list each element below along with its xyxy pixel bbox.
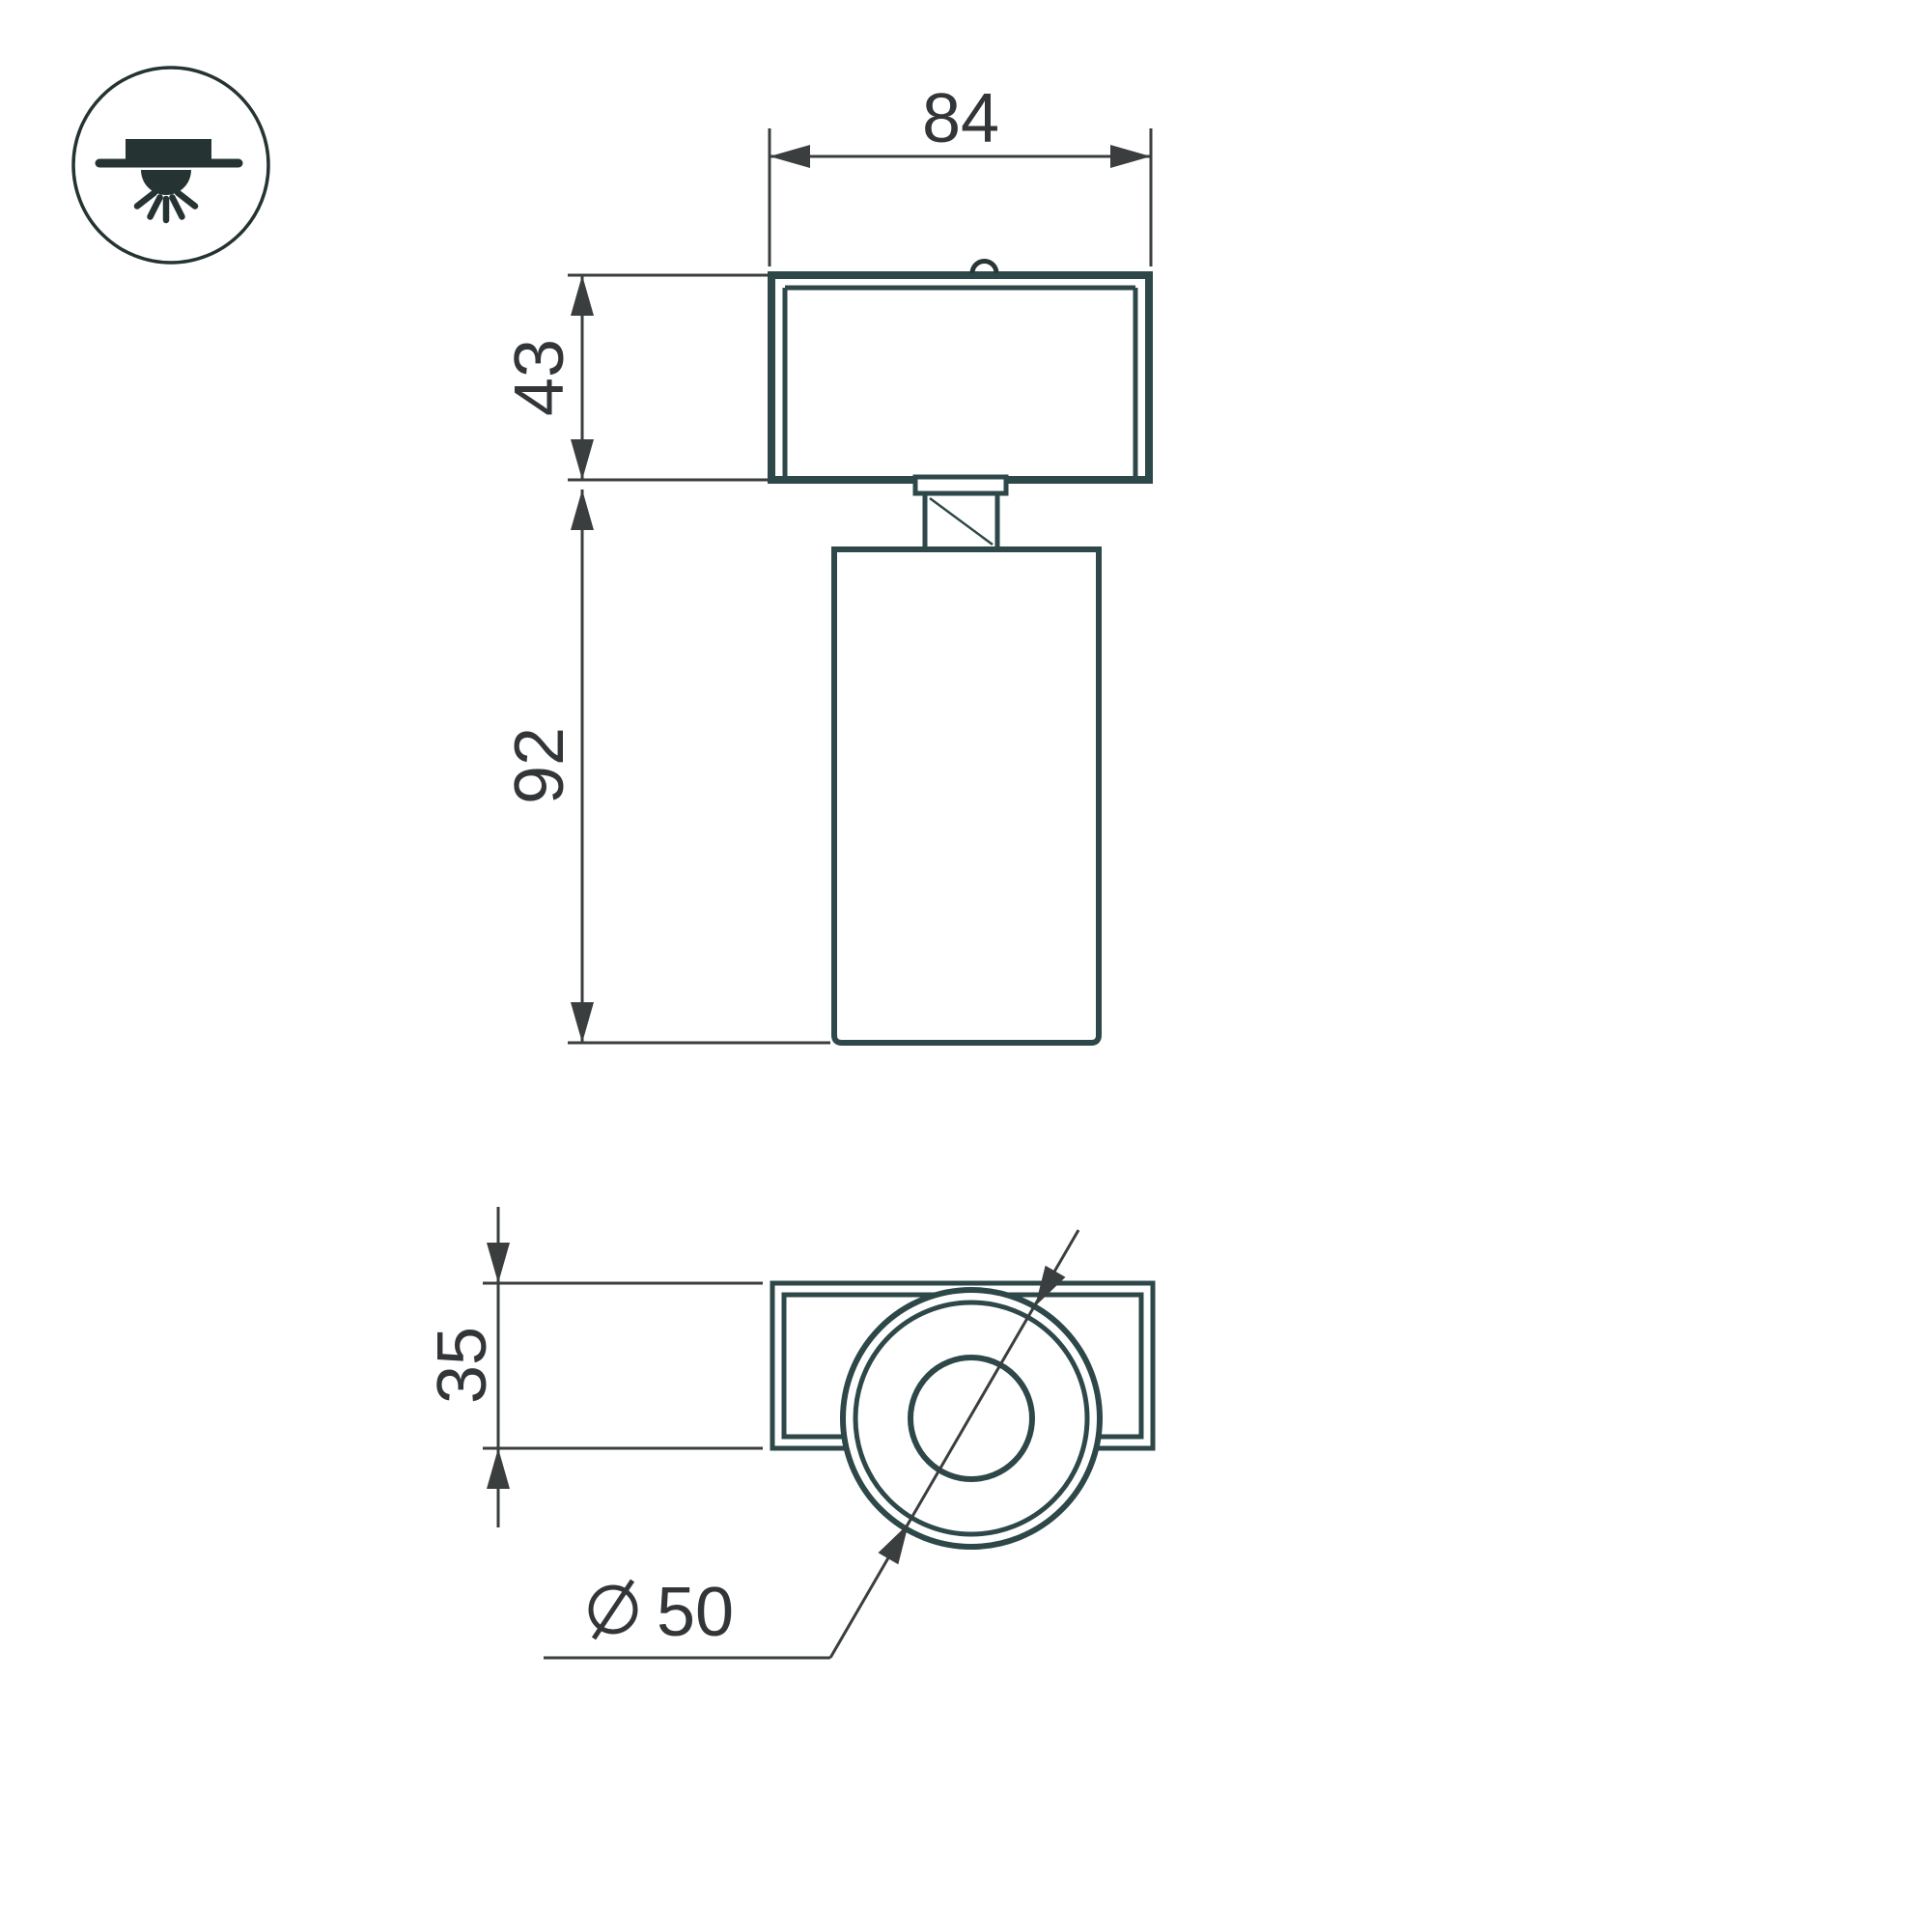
icon-light-dome — [141, 170, 191, 195]
dimension-body-height-92: 92 — [501, 490, 830, 1043]
arrowhead-up — [571, 490, 594, 530]
mounting-bracket-front — [771, 262, 1149, 481]
arrowhead-down — [487, 1243, 510, 1283]
arrowhead-up — [487, 1448, 510, 1489]
icon-fixture-box — [126, 139, 211, 162]
bracket-outer — [771, 275, 1149, 480]
arrowhead-lower — [879, 1524, 910, 1564]
body-outer-circle — [843, 1290, 1100, 1547]
mount-type-icon — [73, 68, 268, 263]
dimension-label-bracket-height: 43 — [501, 339, 578, 416]
dimension-depth-35: 35 — [424, 1207, 763, 1527]
dimension-label-body-height: 92 — [501, 727, 578, 804]
arrowhead-down — [571, 439, 594, 480]
arrowhead-right — [1110, 145, 1151, 168]
dimension-label-depth: 35 — [424, 1327, 501, 1404]
front-view: 84 43 92 — [501, 80, 1151, 1043]
arrowhead-left — [770, 145, 810, 168]
cylinder-body — [834, 549, 1099, 1043]
arrowhead-down — [571, 1002, 594, 1043]
swivel-collar — [915, 477, 1006, 493]
icon-light-rays — [137, 193, 195, 221]
bottom-view: 50 35 — [424, 1207, 1153, 1658]
diameter-symbol — [591, 1581, 635, 1638]
dimension-label-diameter: 50 — [657, 1574, 734, 1651]
dimension-drawing: 84 43 92 — [0, 0, 1932, 1932]
dimension-width-84: 84 — [770, 80, 1151, 266]
arrowhead-up — [571, 275, 594, 316]
dimension-bracket-height-43: 43 — [501, 275, 768, 480]
dimension-label-width: 84 — [922, 80, 999, 157]
